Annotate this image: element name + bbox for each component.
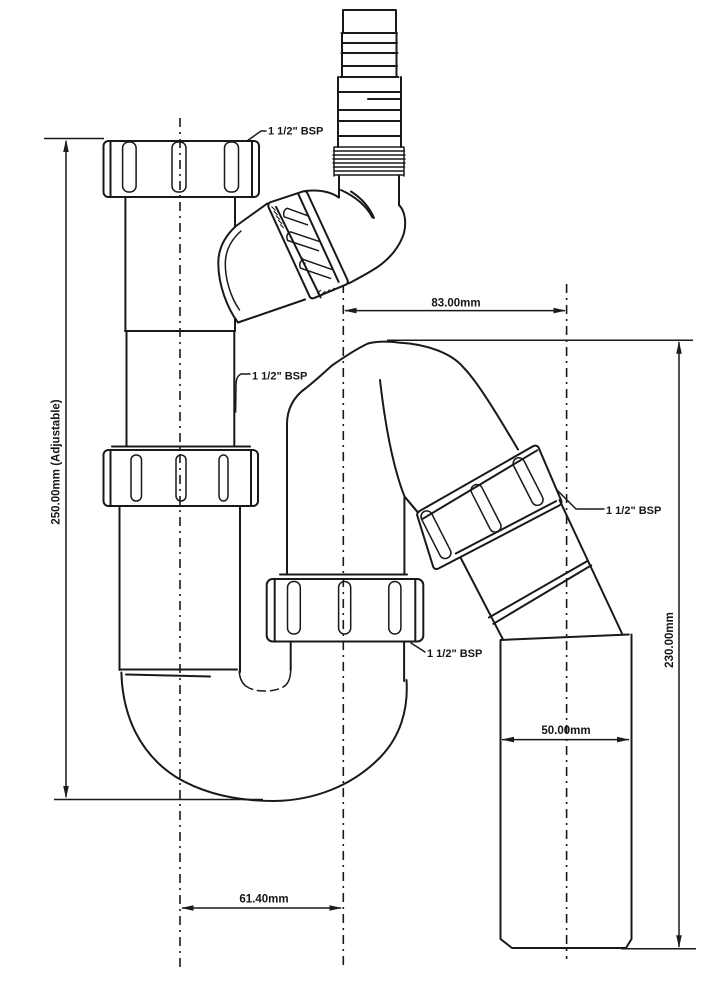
- svg-text:250.00mm (Adjustable): 250.00mm (Adjustable): [51, 399, 63, 524]
- svg-text:1 1/2" BSP: 1 1/2" BSP: [606, 505, 661, 517]
- svg-text:1 1/2" BSP: 1 1/2" BSP: [252, 371, 307, 383]
- svg-text:61.40mm: 61.40mm: [239, 894, 288, 906]
- svg-text:230.00mm: 230.00mm: [664, 612, 676, 668]
- svg-text:50.00mm: 50.00mm: [541, 725, 590, 737]
- svg-text:1 1/2" BSP: 1 1/2" BSP: [268, 126, 323, 138]
- svg-text:83.00mm: 83.00mm: [431, 298, 480, 310]
- svg-text:1 1/2" BSP: 1 1/2" BSP: [427, 648, 482, 660]
